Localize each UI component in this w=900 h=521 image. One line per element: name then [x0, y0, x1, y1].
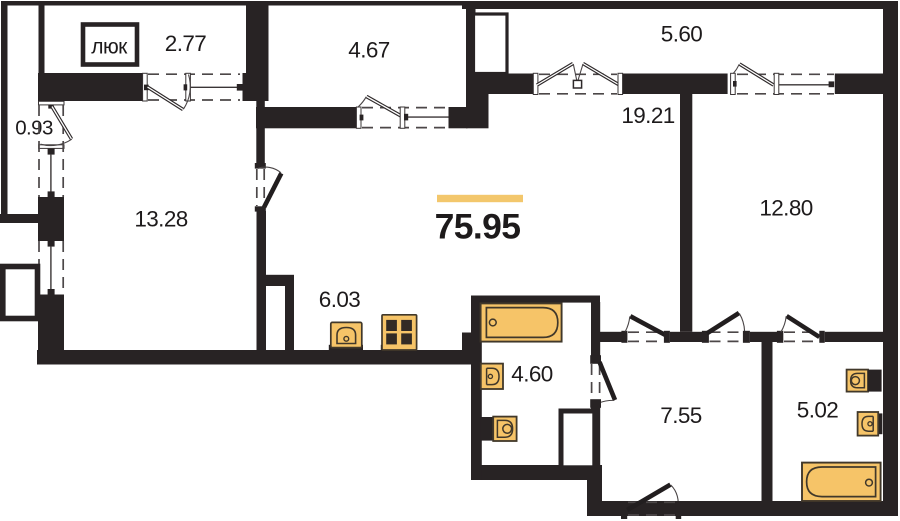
svg-text:люк: люк — [91, 36, 128, 59]
svg-text:5.60: 5.60 — [661, 22, 702, 47]
svg-text:5.02: 5.02 — [797, 398, 838, 423]
svg-text:4.60: 4.60 — [511, 362, 552, 387]
svg-text:0.93: 0.93 — [15, 116, 53, 139]
svg-text:4.67: 4.67 — [348, 37, 389, 62]
svg-text:19.21: 19.21 — [621, 103, 674, 128]
svg-text:13.28: 13.28 — [134, 207, 187, 232]
svg-text:7.55: 7.55 — [660, 403, 701, 428]
svg-text:6.03: 6.03 — [319, 287, 360, 312]
svg-text:2.77: 2.77 — [165, 31, 206, 56]
svg-text:12.80: 12.80 — [759, 196, 812, 221]
svg-text:75.95: 75.95 — [435, 207, 521, 247]
